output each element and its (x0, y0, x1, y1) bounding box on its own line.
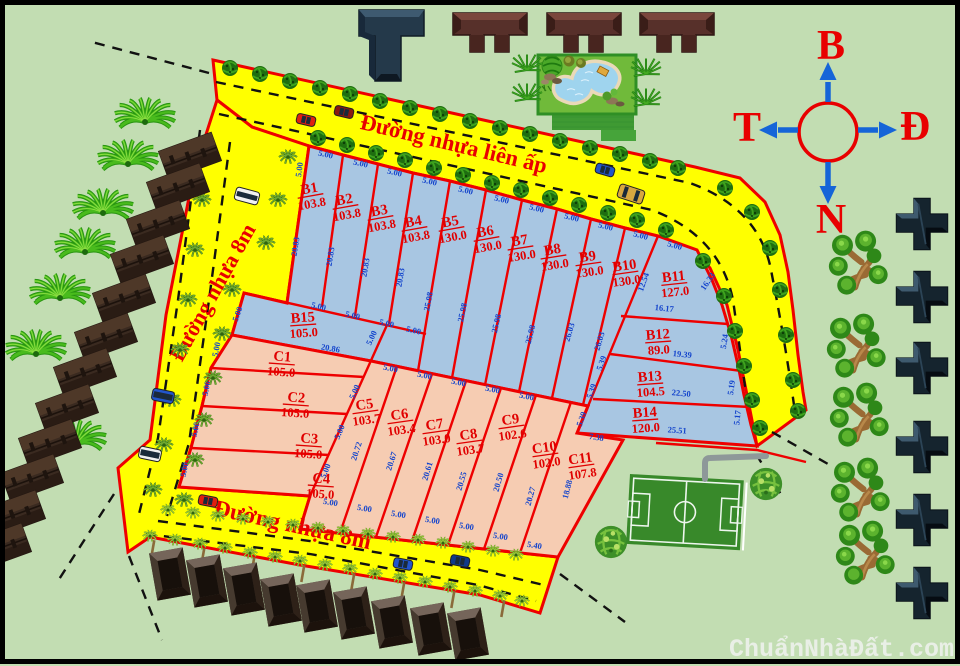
svg-text:104.5: 104.5 (636, 384, 665, 400)
svg-text:T: T (733, 105, 761, 151)
svg-text:19.39: 19.39 (672, 348, 692, 360)
svg-text:5.00: 5.00 (293, 162, 305, 178)
svg-text:22.50: 22.50 (671, 387, 691, 399)
svg-text:127.0: 127.0 (660, 284, 689, 301)
svg-text:105.0: 105.0 (281, 405, 310, 421)
svg-text:25.51: 25.51 (667, 424, 687, 435)
svg-text:89.0: 89.0 (647, 342, 670, 357)
svg-text:16.17: 16.17 (654, 302, 675, 314)
svg-text:Đ: Đ (900, 104, 930, 150)
svg-text:5.17: 5.17 (731, 409, 743, 426)
svg-text:105.0: 105.0 (294, 446, 323, 462)
svg-text:5.19: 5.19 (725, 380, 737, 396)
svg-text:105.0: 105.0 (289, 325, 318, 341)
svg-text:7.38: 7.38 (588, 431, 604, 443)
svg-text:B: B (817, 23, 845, 69)
svg-text:105.0: 105.0 (267, 364, 296, 380)
svg-text:N: N (816, 197, 846, 243)
svg-text:120.0: 120.0 (631, 420, 660, 436)
